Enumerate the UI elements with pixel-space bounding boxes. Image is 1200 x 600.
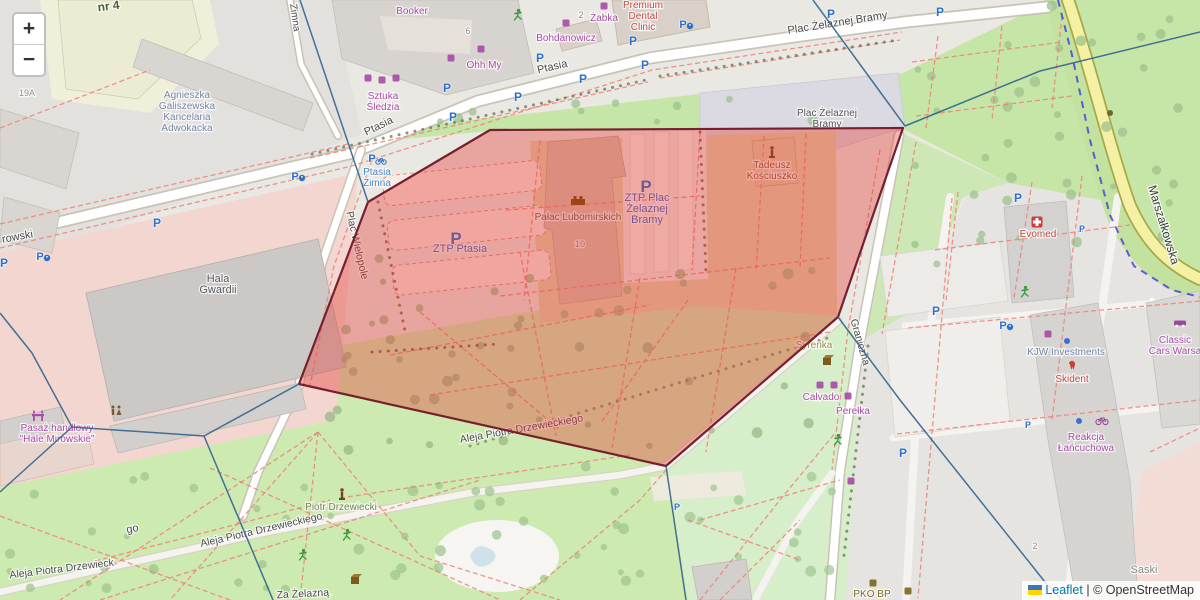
tree-dot bbox=[618, 569, 624, 575]
building-evomed bbox=[1004, 201, 1074, 303]
shop-icon bbox=[379, 77, 386, 84]
dot-icon bbox=[1064, 338, 1070, 344]
tree-dot bbox=[327, 513, 334, 520]
tree-dot bbox=[1101, 121, 1112, 132]
svg-text:P: P bbox=[827, 7, 835, 21]
shop-icon bbox=[848, 478, 855, 485]
svg-text:P: P bbox=[579, 72, 587, 86]
leaflet-link[interactable]: Leaflet bbox=[1045, 583, 1083, 597]
ukraine-flag-icon bbox=[1028, 585, 1042, 595]
dot-icon bbox=[1076, 418, 1082, 424]
tree-dot bbox=[148, 564, 158, 574]
tree-dot bbox=[301, 484, 309, 492]
tree-dot bbox=[1004, 139, 1013, 148]
tree-dot bbox=[636, 570, 644, 578]
tree-dot bbox=[471, 487, 480, 496]
tree-dot bbox=[601, 544, 607, 550]
tree-dot bbox=[978, 231, 985, 238]
tree-dot bbox=[673, 102, 682, 111]
tree-dot bbox=[1088, 38, 1096, 46]
tree-dot bbox=[610, 487, 619, 496]
shop-icon bbox=[1045, 331, 1052, 338]
svg-text:P: P bbox=[536, 51, 544, 65]
zoom-in-button[interactable]: + bbox=[14, 14, 44, 45]
tree-dot bbox=[1004, 41, 1011, 48]
tree-dot bbox=[492, 530, 502, 540]
tree-dot bbox=[981, 154, 989, 162]
tree-dot bbox=[752, 427, 763, 438]
tree-dot bbox=[824, 565, 834, 575]
street-label: go bbox=[125, 522, 139, 536]
tree-dot bbox=[807, 472, 817, 482]
tree-dot bbox=[1169, 179, 1178, 188]
tree-dot bbox=[1002, 196, 1012, 206]
tree-dot bbox=[1118, 128, 1127, 137]
tree-dot bbox=[654, 119, 660, 125]
tree-dot bbox=[581, 462, 591, 472]
tree-dot bbox=[5, 549, 15, 559]
tree-dot bbox=[734, 495, 744, 505]
parking-icon: P bbox=[153, 216, 161, 230]
parking-icon: P bbox=[1025, 420, 1031, 430]
tree-dot bbox=[253, 505, 260, 512]
svg-text:P: P bbox=[514, 90, 522, 104]
parking-lot bbox=[885, 317, 1010, 437]
svg-text:P: P bbox=[36, 251, 43, 263]
svg-text:P: P bbox=[443, 81, 451, 95]
tree-dot bbox=[912, 162, 919, 169]
tree-dot bbox=[1014, 87, 1024, 97]
tree-dot bbox=[129, 476, 137, 484]
shop-icon bbox=[817, 382, 824, 389]
poi-label: SztukaŚledzia bbox=[367, 91, 400, 113]
zoom-out-button[interactable]: − bbox=[14, 45, 44, 75]
cross-icon bbox=[1032, 217, 1043, 228]
poi-label: Skident bbox=[1055, 374, 1089, 385]
attribution-bar: Leaflet | © OpenStreetMap bbox=[1022, 581, 1200, 600]
tree-dot bbox=[571, 99, 580, 108]
map-canvas[interactable]: PtasiaPtasiaPlac Żelaznej BramyZimnaMars… bbox=[0, 0, 1200, 600]
map-viewport[interactable]: PtasiaPtasiaPlac Żelaznej BramyZimnaMars… bbox=[0, 0, 1200, 600]
tree-dot bbox=[794, 528, 802, 536]
tree-dot bbox=[1140, 64, 1148, 72]
tree-dot bbox=[519, 517, 528, 526]
parking-icon: P bbox=[579, 72, 587, 86]
tree-dot bbox=[805, 566, 816, 577]
poi-label: Booker bbox=[396, 6, 428, 17]
poi-label: PtasiaZimna bbox=[363, 167, 391, 189]
tree-dot bbox=[344, 445, 354, 455]
tree-dot bbox=[1047, 1, 1058, 12]
tree-dot bbox=[469, 108, 477, 116]
svg-text:P: P bbox=[629, 34, 637, 48]
tree-dot bbox=[333, 406, 342, 415]
svg-text:P: P bbox=[674, 502, 680, 512]
tree-dot bbox=[354, 544, 365, 555]
parking-icon: P bbox=[443, 81, 451, 95]
parking-icon: P bbox=[0, 256, 8, 270]
tree-dot bbox=[1110, 183, 1116, 189]
parking-icon: P bbox=[514, 90, 522, 104]
svg-text:P: P bbox=[0, 256, 8, 270]
parking-icon: P bbox=[1014, 191, 1022, 205]
tree-dot bbox=[911, 241, 918, 248]
zoom-control: + − bbox=[12, 12, 46, 77]
tree-dot bbox=[1071, 237, 1082, 248]
tree-dot bbox=[1156, 29, 1166, 39]
shop-icon bbox=[831, 382, 838, 389]
poi-label: Bohdanowicz bbox=[536, 33, 595, 44]
svg-text:P: P bbox=[999, 320, 1006, 332]
dot-icon bbox=[1107, 110, 1113, 116]
tree-dot bbox=[485, 487, 495, 497]
tree-dot bbox=[1173, 103, 1183, 113]
parking-icon: P bbox=[1079, 224, 1085, 234]
shop-icon bbox=[365, 75, 372, 82]
svg-text:P: P bbox=[1014, 191, 1022, 205]
tree-dot bbox=[1006, 172, 1017, 183]
tree-dot bbox=[1166, 15, 1174, 23]
tree-dot bbox=[621, 576, 631, 586]
tree-dot bbox=[1055, 132, 1064, 141]
tree-dot bbox=[1062, 178, 1071, 187]
tree-dot bbox=[386, 438, 393, 445]
shop-icon bbox=[448, 55, 455, 62]
poi-label: Evomed bbox=[1020, 229, 1057, 240]
tree-dot bbox=[88, 527, 96, 535]
tree-dot bbox=[495, 497, 504, 506]
parking-icon: P bbox=[449, 110, 457, 124]
parking-icon: P bbox=[936, 5, 944, 19]
tree-dot bbox=[828, 487, 836, 495]
tree-dot bbox=[781, 382, 788, 389]
svg-text:P: P bbox=[679, 19, 686, 31]
tree-dot bbox=[1137, 33, 1146, 42]
parking-icon: P bbox=[536, 51, 544, 65]
svg-text:P: P bbox=[1079, 224, 1085, 234]
shop-icon bbox=[845, 393, 852, 400]
poi-label: Ohh My bbox=[466, 60, 501, 71]
svg-text:P: P bbox=[641, 58, 649, 72]
parking-icon: P bbox=[827, 7, 835, 21]
tree-dot bbox=[1166, 199, 1173, 206]
tree-dot bbox=[434, 563, 444, 573]
tree-dot bbox=[915, 66, 921, 72]
parking-icon: P bbox=[641, 58, 649, 72]
tree-dot bbox=[1152, 166, 1161, 175]
poi-label: Piotr Drzewiecki bbox=[305, 502, 377, 513]
tree-dot bbox=[30, 490, 39, 499]
tree-dot bbox=[102, 583, 112, 593]
courtyard bbox=[380, 16, 472, 54]
svg-text:P: P bbox=[153, 216, 161, 230]
street-label: 6 bbox=[465, 26, 470, 36]
tree-dot bbox=[234, 578, 243, 587]
tree-dot bbox=[789, 538, 799, 548]
tree-dot bbox=[540, 575, 548, 583]
street-label: 2 bbox=[1032, 541, 1037, 551]
parking-icon: P bbox=[629, 34, 637, 48]
shop-icon bbox=[563, 20, 570, 27]
svg-text:P: P bbox=[449, 110, 457, 124]
shop-icon bbox=[601, 3, 608, 10]
tree-dot bbox=[933, 260, 940, 267]
svg-text:P: P bbox=[936, 5, 944, 19]
poi-label: Calvado bbox=[803, 392, 840, 403]
tree-dot bbox=[1003, 102, 1013, 112]
tree-dot bbox=[1054, 111, 1061, 118]
tree-dot bbox=[726, 96, 733, 103]
tree-dot bbox=[474, 499, 485, 510]
tree-dot bbox=[803, 418, 813, 428]
parking-icon: P bbox=[899, 446, 907, 460]
shop-icon bbox=[870, 580, 877, 587]
tree-dot bbox=[1055, 44, 1063, 52]
poi-label: KJW Investments bbox=[1027, 347, 1105, 358]
tree-dot bbox=[1030, 76, 1041, 87]
poi-label: AgnieszkaGaliszewskaKancelariaAdwokacka bbox=[159, 90, 216, 134]
svg-text:P: P bbox=[291, 171, 298, 183]
tree-dot bbox=[390, 570, 400, 580]
poi-label: Żabka bbox=[590, 11, 618, 24]
svg-text:P: P bbox=[368, 153, 375, 165]
tree-dot bbox=[140, 472, 149, 481]
shop-icon bbox=[393, 75, 400, 82]
tree-dot bbox=[970, 190, 979, 199]
street-label: 19A bbox=[19, 88, 35, 98]
svg-text:P: P bbox=[899, 446, 907, 460]
tree-dot bbox=[435, 545, 446, 556]
tree-dot bbox=[325, 412, 336, 423]
tree-dot bbox=[1066, 189, 1076, 199]
attribution-separator: | bbox=[1086, 583, 1089, 597]
tree-dot bbox=[437, 118, 443, 124]
tree-dot bbox=[426, 441, 433, 448]
poi-label: Pasaż handlowy"Hale Mirowskie" bbox=[20, 423, 95, 445]
svg-text:P: P bbox=[1025, 420, 1031, 430]
tree-dot bbox=[710, 484, 717, 491]
street-label: 2 bbox=[578, 10, 583, 20]
svg-text:P: P bbox=[932, 304, 940, 318]
tree-dot bbox=[26, 583, 35, 592]
parking-icon: P bbox=[932, 304, 940, 318]
poi-label: Perełka bbox=[836, 406, 870, 417]
tree-dot bbox=[574, 552, 581, 559]
shop-icon bbox=[905, 588, 912, 595]
tree-dot bbox=[927, 72, 936, 81]
osm-attribution: © OpenStreetMap bbox=[1093, 583, 1194, 597]
tree-dot bbox=[189, 484, 198, 493]
tree-dot bbox=[1076, 36, 1087, 47]
tree-dot bbox=[612, 99, 620, 107]
poi-label: PKO BP bbox=[853, 589, 891, 600]
street-label: Saski bbox=[1131, 564, 1158, 576]
shop-icon bbox=[478, 46, 485, 53]
tree-dot bbox=[578, 108, 585, 115]
parking-icon: P bbox=[674, 502, 680, 512]
